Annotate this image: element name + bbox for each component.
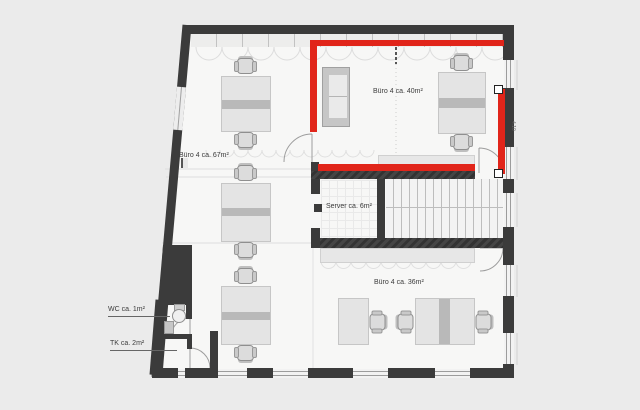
wall-column-west xyxy=(181,158,188,168)
office-chair-icon xyxy=(453,55,470,71)
room-label-wc: WC ca. 1m² xyxy=(108,306,170,317)
wall-pier-south xyxy=(247,368,273,378)
room-label-buero67: Büro 4 ca. 67m² xyxy=(179,152,229,159)
desk-group xyxy=(221,286,271,345)
dimension-text: 4.10 xyxy=(510,121,516,131)
wall-server-east xyxy=(377,179,385,240)
annotation-handle-top[interactable] xyxy=(494,85,503,94)
room-label-buero36: Büro 4 ca. 36m² xyxy=(374,279,424,286)
office-chair-icon xyxy=(237,132,254,148)
highlight-annotation-right[interactable] xyxy=(498,89,505,174)
sink-icon xyxy=(164,321,174,334)
wall-pier-east xyxy=(503,25,514,60)
wall-pier-south xyxy=(388,368,435,378)
wall-wc-east xyxy=(186,305,192,319)
highlight-annotation-top[interactable] xyxy=(311,40,504,46)
exterior-wall-north xyxy=(183,25,514,34)
office-chair-icon xyxy=(476,314,492,331)
office-chair-icon xyxy=(237,268,254,284)
desk-group xyxy=(221,183,271,242)
sofa xyxy=(322,67,350,127)
office-chair-icon xyxy=(237,345,254,361)
wall-buero40-south xyxy=(311,170,475,179)
office-chair-icon xyxy=(453,134,470,150)
shaft-wall-block xyxy=(159,245,192,305)
desk-group xyxy=(438,72,486,134)
annotation-handle-bottom[interactable] xyxy=(494,169,503,178)
wall-pier-east xyxy=(503,179,514,193)
room-label-server: Server ca. 6m² xyxy=(326,203,372,210)
office-chair-icon xyxy=(237,242,254,258)
sideboard xyxy=(320,248,475,263)
wall-entry-corridor xyxy=(210,331,218,370)
wall-pier-east xyxy=(503,227,514,265)
wall-server-west-pier xyxy=(311,228,320,248)
wall-pier-south xyxy=(470,368,514,378)
office-chair-icon xyxy=(237,58,254,74)
floor-plan-canvas: Büro 4 ca. 67m² Büro 4 ca. 40m² Server c… xyxy=(0,0,640,410)
wall-hall-south xyxy=(311,238,503,248)
curtain-scallops-mid xyxy=(206,150,374,157)
office-chair-icon xyxy=(370,314,386,331)
wall-pier-south xyxy=(308,368,353,378)
room-label-tk: TK ca. 2m² xyxy=(110,340,177,351)
door-arc-hall-buero36 xyxy=(480,248,503,271)
wall-pier-east xyxy=(503,296,514,333)
highlight-annotation-left[interactable] xyxy=(310,40,317,132)
door-arc-buero67-buero40 xyxy=(284,134,312,162)
wall-server-west-post xyxy=(314,204,322,212)
wall-tk-east xyxy=(187,339,192,349)
office-chair-icon xyxy=(237,165,254,181)
wall-server-west-pier xyxy=(311,179,320,194)
desk-group xyxy=(221,76,271,132)
desk-group xyxy=(415,298,475,345)
staircase-landing-line xyxy=(386,207,503,208)
staircase xyxy=(386,179,503,238)
desk-single xyxy=(338,298,369,345)
highlight-annotation-bottom[interactable] xyxy=(318,164,475,171)
wall-pier-south xyxy=(152,368,178,378)
door-arc-tk xyxy=(190,348,210,368)
room-label-buero40: Büro 4 ca. 40m² xyxy=(373,88,423,95)
toilet-icon xyxy=(172,309,186,323)
office-chair-icon xyxy=(398,314,414,331)
